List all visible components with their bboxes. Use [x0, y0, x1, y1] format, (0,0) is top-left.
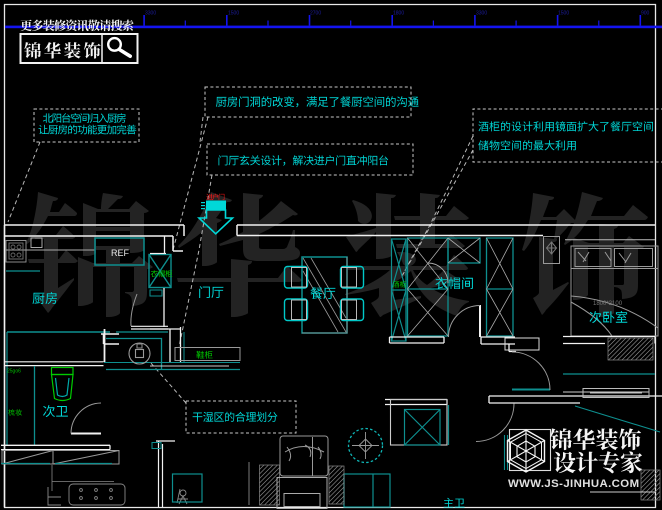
svg-text:1500: 1500	[558, 11, 569, 17]
svg-text:1800: 1800	[393, 11, 404, 17]
svg-text:1800*2100: 1800*2100	[593, 301, 623, 307]
svg-text:REF: REF	[111, 248, 130, 258]
svg-text:1500: 1500	[228, 11, 239, 17]
svg-text:3300: 3300	[145, 11, 156, 17]
svg-text:WWW.JS-JINHUA.COM: WWW.JS-JINHUA.COM	[508, 478, 639, 490]
svg-text:900: 900	[641, 11, 650, 17]
svg-text:2700: 2700	[310, 11, 321, 17]
svg-text:3300: 3300	[476, 11, 487, 17]
svg-text:25go6: 25go6	[7, 369, 21, 375]
